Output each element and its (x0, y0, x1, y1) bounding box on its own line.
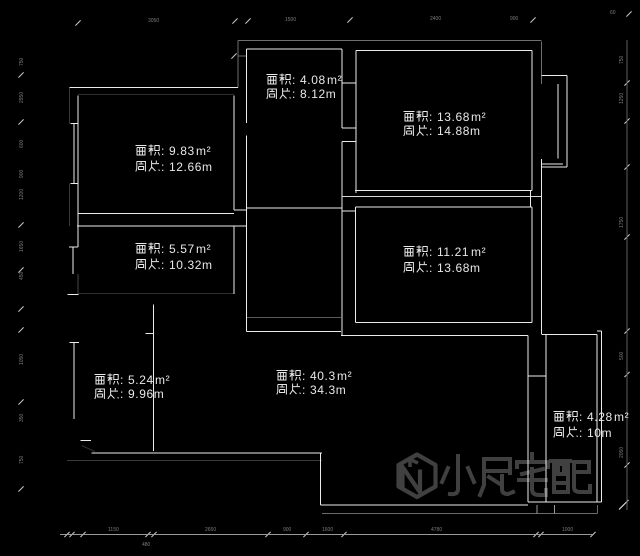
svg-text:2050: 2050 (619, 447, 625, 458)
svg-text::: : (429, 261, 433, 275)
svg-text::: : (302, 383, 306, 397)
svg-text:2400: 2400 (430, 16, 441, 22)
svg-text::: : (120, 387, 124, 401)
svg-text::: : (120, 373, 124, 387)
svg-text::: : (579, 426, 583, 440)
svg-text:m²: m² (155, 373, 170, 387)
svg-text::: : (579, 410, 583, 424)
svg-text::: : (429, 110, 433, 124)
svg-text:1000: 1000 (562, 527, 573, 533)
svg-text:750: 750 (19, 57, 25, 66)
svg-text:m²: m² (471, 110, 486, 124)
svg-text:3050: 3050 (148, 18, 159, 24)
svg-text:1650: 1650 (19, 241, 25, 252)
svg-text::: : (161, 242, 165, 256)
svg-text::: : (429, 245, 433, 259)
svg-text::: : (161, 160, 165, 174)
svg-text:34.3m: 34.3m (310, 383, 346, 397)
svg-text:1150: 1150 (108, 527, 119, 533)
svg-text:9.96m: 9.96m (128, 387, 164, 401)
svg-text:750: 750 (619, 55, 625, 64)
svg-text:5.57: 5.57 (169, 242, 195, 256)
svg-text:450: 450 (19, 271, 25, 280)
svg-text::: : (161, 144, 165, 158)
svg-text:m²: m² (471, 245, 486, 259)
svg-text:40.3: 40.3 (310, 369, 336, 383)
svg-text:480: 480 (142, 542, 151, 548)
svg-text::: : (429, 124, 433, 138)
svg-text:900: 900 (510, 16, 519, 22)
svg-text:m²: m² (327, 73, 342, 87)
svg-text:m²: m² (196, 242, 211, 256)
svg-text:600: 600 (19, 139, 25, 148)
svg-text:m²: m² (614, 410, 629, 424)
svg-text:900: 900 (19, 169, 25, 178)
svg-text:10.32m: 10.32m (169, 258, 213, 272)
svg-text::: : (292, 73, 296, 87)
svg-text:4.28: 4.28 (587, 410, 613, 424)
svg-text:13.68: 13.68 (437, 110, 470, 124)
svg-text:m²: m² (196, 144, 211, 158)
svg-text:5.24: 5.24 (128, 373, 154, 387)
svg-text:350: 350 (19, 413, 25, 422)
svg-text:4780: 4780 (431, 527, 442, 533)
svg-text:9.83: 9.83 (169, 144, 195, 158)
svg-text:750: 750 (19, 455, 25, 464)
svg-text:11.21: 11.21 (437, 245, 469, 259)
svg-text:1500: 1500 (285, 17, 296, 23)
svg-text:900: 900 (283, 527, 292, 533)
svg-text::: : (161, 258, 165, 272)
svg-text:14.88m: 14.88m (437, 124, 481, 138)
svg-text:60: 60 (610, 10, 616, 16)
svg-text:1600: 1600 (322, 527, 333, 533)
svg-text::: : (292, 87, 296, 101)
svg-text:12.66m: 12.66m (169, 160, 213, 174)
svg-text:m²: m² (337, 369, 352, 383)
svg-text:1750: 1750 (619, 217, 625, 228)
svg-text:1250: 1250 (619, 93, 625, 104)
svg-text:4.08: 4.08 (300, 73, 326, 87)
svg-text:2950: 2950 (19, 92, 25, 103)
svg-text:13.68m: 13.68m (437, 261, 481, 275)
svg-text:1050: 1050 (19, 354, 25, 365)
svg-text:2650: 2650 (205, 527, 216, 533)
svg-text:8.12m: 8.12m (300, 87, 336, 101)
svg-text::: : (302, 369, 306, 383)
svg-text:1200: 1200 (19, 189, 25, 200)
svg-text:10m: 10m (587, 426, 612, 440)
svg-text:500: 500 (619, 351, 625, 360)
